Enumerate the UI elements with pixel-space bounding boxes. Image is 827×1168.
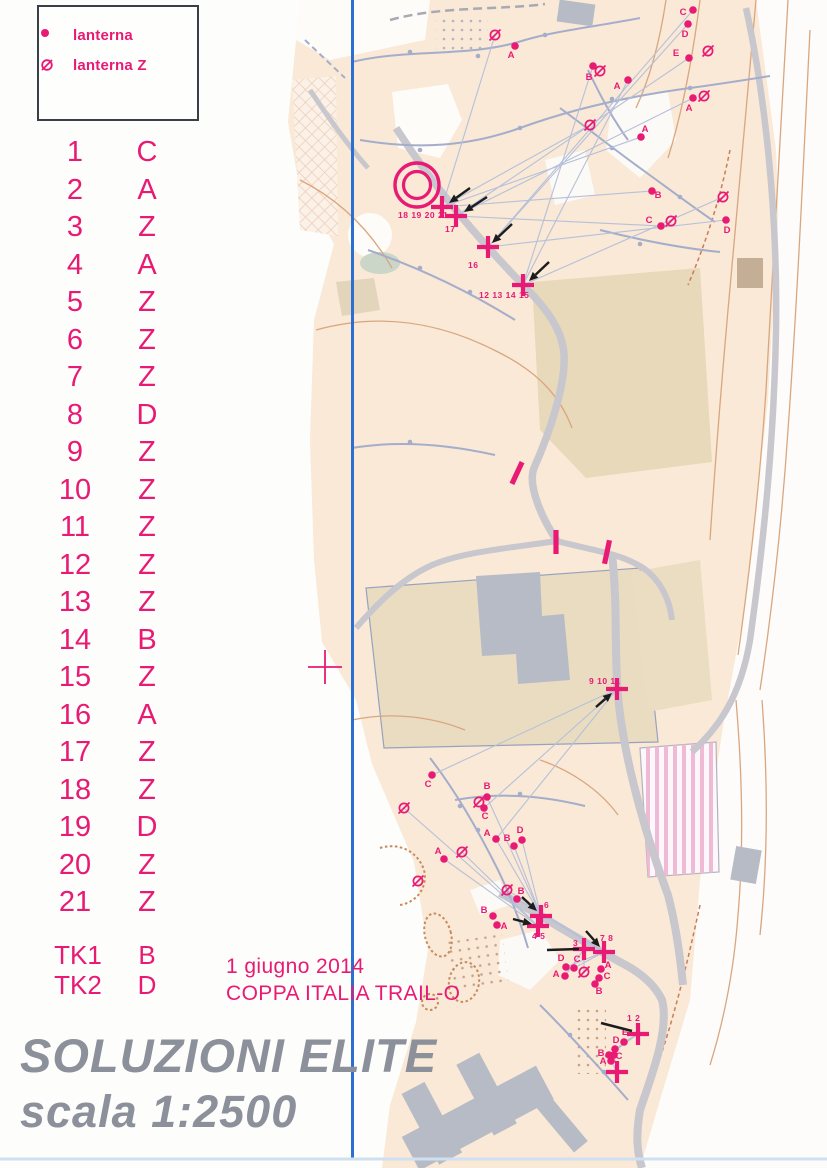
event-info: 1 giugno 2014 COPPA ITALIA TRAIL-O	[226, 953, 460, 1007]
control-answer: Z	[128, 511, 166, 544]
solution-row: 16A	[0, 697, 166, 735]
solution-row: 7Z	[0, 359, 166, 397]
control-number: 19	[52, 811, 98, 844]
control-number: 18	[52, 774, 98, 807]
control-answer: Z	[128, 324, 166, 357]
solution-row: 6Z	[0, 322, 166, 360]
solution-row: 14B	[0, 622, 166, 660]
control-answer: C	[128, 136, 166, 169]
control-answer: D	[128, 811, 166, 844]
control-number: 15	[52, 661, 98, 694]
control-number: 21	[52, 886, 98, 919]
control-answer: Z	[128, 474, 166, 507]
control-number: 17	[52, 736, 98, 769]
control-answer: B	[128, 624, 166, 657]
control-number: TK2	[42, 970, 114, 1001]
event-date: 1 giugno 2014	[226, 953, 460, 980]
control-answer: Z	[128, 549, 166, 582]
solution-row: 15Z	[0, 659, 166, 697]
solution-row: TK1B	[0, 940, 166, 970]
control-answer: Z	[128, 774, 166, 807]
control-number: 3	[52, 211, 98, 244]
control-number: 16	[52, 699, 98, 732]
solutions-sheet: { "meta": { "event_date": "1 giugno 2014…	[0, 0, 827, 1168]
control-answer: B	[128, 940, 166, 971]
solution-row: 13Z	[0, 584, 166, 622]
control-answer: Z	[128, 586, 166, 619]
solution-row: 18Z	[0, 772, 166, 810]
solution-row: 8D	[0, 397, 166, 435]
control-number: 13	[52, 586, 98, 619]
control-number: 14	[52, 624, 98, 657]
solution-row: 19D	[0, 809, 166, 847]
control-answer: D	[128, 970, 166, 1001]
control-number: 5	[52, 286, 98, 319]
timed-controls-list: TK1BTK2D	[0, 940, 166, 1000]
control-answer: Z	[128, 211, 166, 244]
control-answer: A	[128, 174, 166, 207]
control-number: 4	[52, 249, 98, 282]
legend-box: lanterna lanterna Z	[37, 5, 199, 121]
solution-row: TK2D	[0, 970, 166, 1000]
solution-row: 10Z	[0, 472, 166, 510]
control-answer: Z	[128, 436, 166, 469]
control-number: 10	[52, 474, 98, 507]
solution-row: 1C	[0, 134, 166, 172]
solution-row: 12Z	[0, 547, 166, 585]
control-answer: D	[128, 399, 166, 432]
solution-row: 11Z	[0, 509, 166, 547]
control-number: 8	[52, 399, 98, 432]
control-answer: A	[128, 249, 166, 282]
control-answer: Z	[128, 361, 166, 394]
solution-row: 3Z	[0, 209, 166, 247]
control-answer: Z	[128, 286, 166, 319]
solution-row: 4A	[0, 247, 166, 285]
control-answer: Z	[128, 661, 166, 694]
solution-row: 17Z	[0, 734, 166, 772]
control-number: 1	[52, 136, 98, 169]
solution-row: 9Z	[0, 434, 166, 472]
solution-row: 2A	[0, 172, 166, 210]
solutions-list: 1C2A3Z4A5Z6Z7Z8D9Z10Z11Z12Z13Z14B15Z16A1…	[0, 134, 166, 922]
control-number: 7	[52, 361, 98, 394]
control-number: 11	[52, 511, 98, 544]
control-answer: Z	[128, 886, 166, 919]
sheet-scale: scala 1:2500	[20, 1086, 297, 1138]
control-number: 2	[52, 174, 98, 207]
event-name: COPPA ITALIA TRAIL-O	[226, 980, 460, 1007]
solution-row: 21Z	[0, 884, 166, 922]
control-number: 9	[52, 436, 98, 469]
control-number: 6	[52, 324, 98, 357]
control-number: TK1	[42, 940, 114, 971]
control-answer: Z	[128, 736, 166, 769]
control-answer: Z	[128, 849, 166, 882]
legend-label-lanterna-z: lanterna Z	[73, 57, 147, 74]
control-answer: A	[128, 699, 166, 732]
sheet-title: SOLUZIONI ELITE	[20, 1028, 437, 1083]
solution-row: 20Z	[0, 847, 166, 885]
solution-row: 5Z	[0, 284, 166, 322]
legend-label-lanterna: lanterna	[73, 27, 133, 44]
control-number: 12	[52, 549, 98, 582]
control-number: 20	[52, 849, 98, 882]
